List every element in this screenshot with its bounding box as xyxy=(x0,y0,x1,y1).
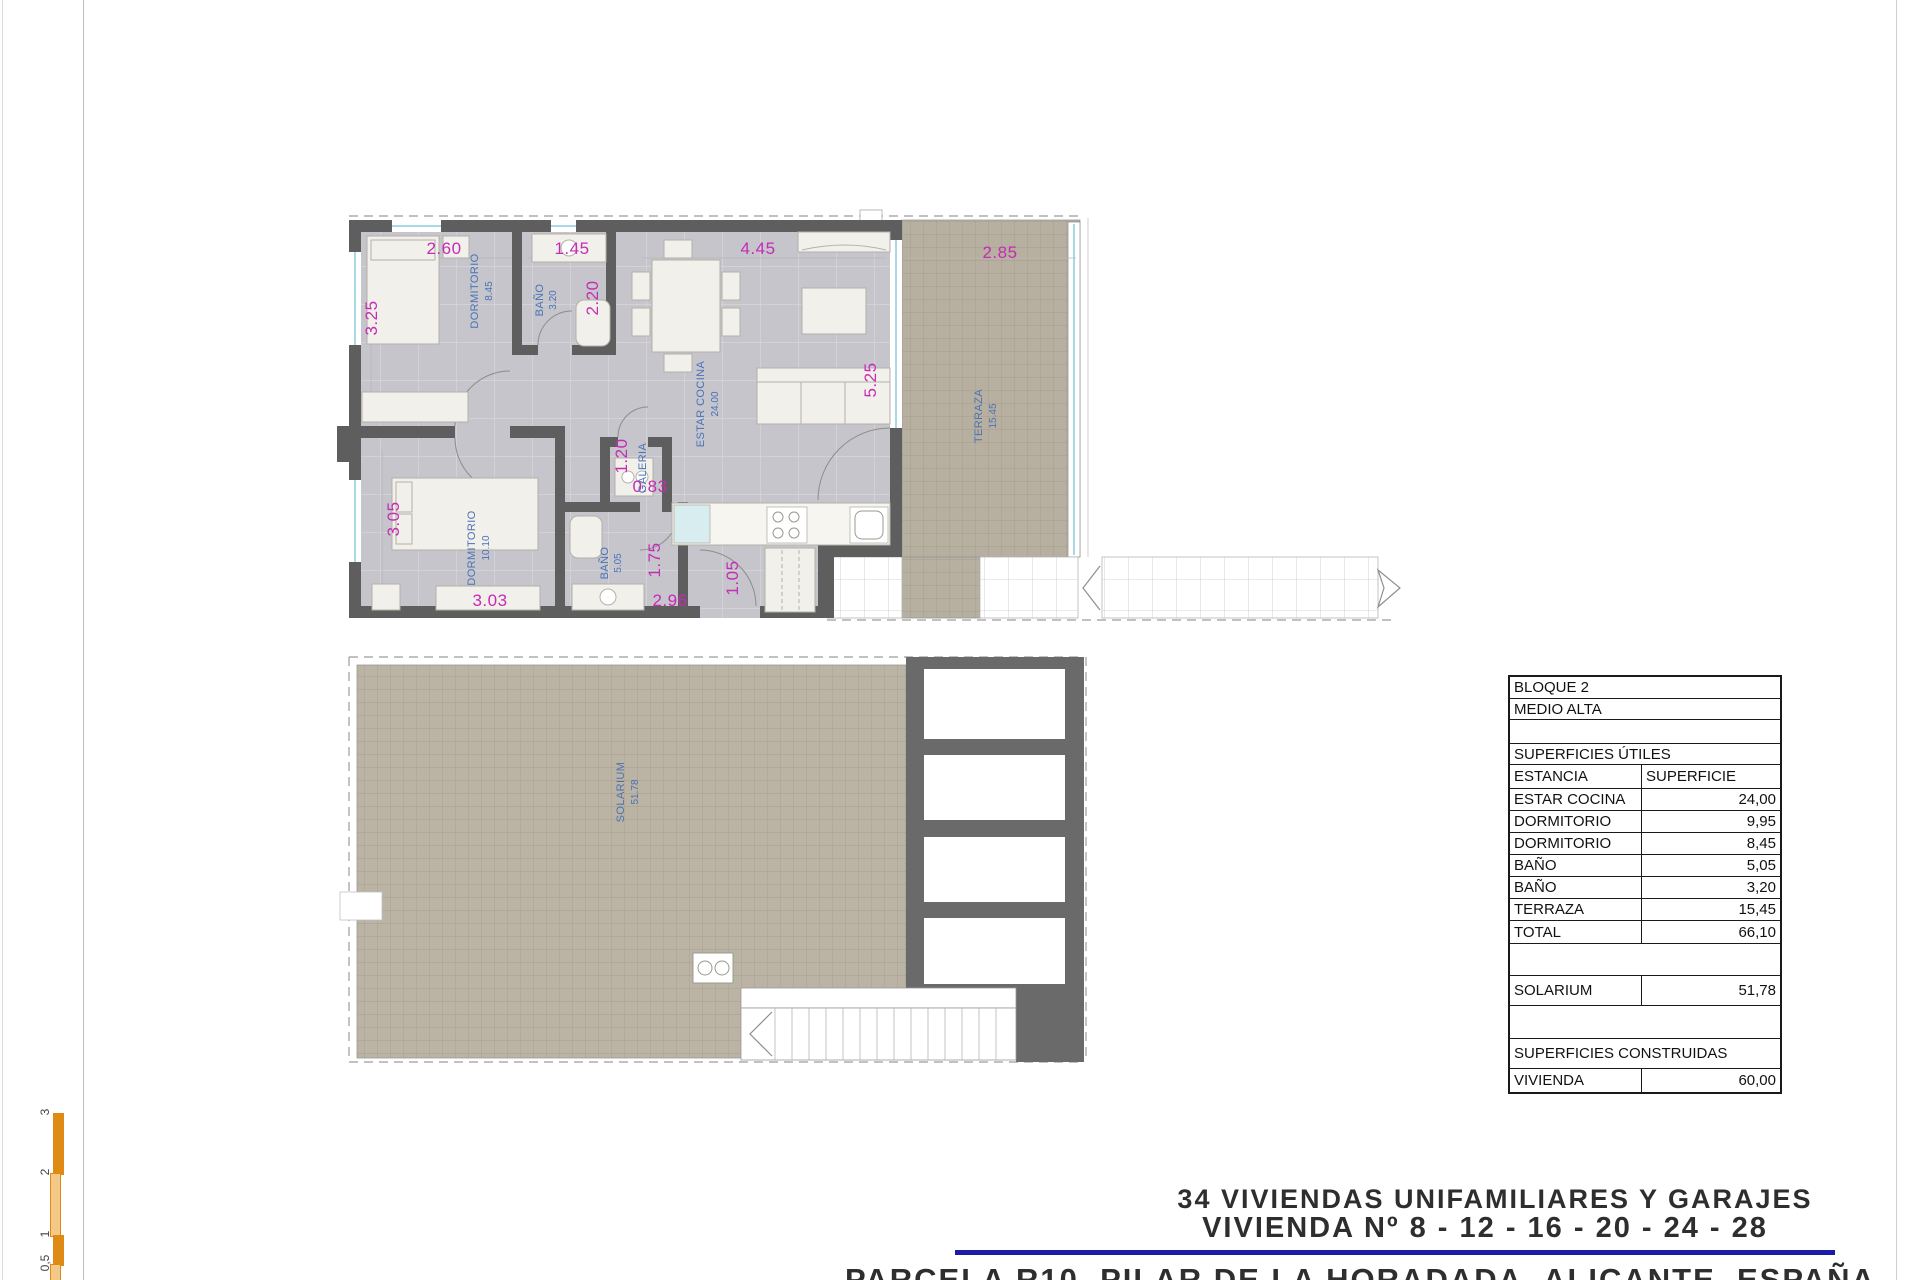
lower-floor-plan: SOLARIUM 51.78 xyxy=(340,657,1086,1062)
room-area-label: 51.78 xyxy=(630,779,641,804)
dim-label: 3.25 xyxy=(362,300,381,335)
col-header-room: ESTANCIA xyxy=(1510,765,1642,788)
stairs xyxy=(741,988,1016,1060)
table-row-level: MEDIO ALTA xyxy=(1510,699,1780,720)
row-area: 51,78 xyxy=(1642,976,1780,1005)
table-row: TERRAZA15,45 xyxy=(1510,899,1780,921)
scale-segment xyxy=(53,1235,64,1266)
useful-title: SUPERFICIES ÚTILES xyxy=(1510,744,1780,764)
row-area: 24,00 xyxy=(1642,789,1780,810)
dim-label: 3.05 xyxy=(384,501,403,536)
room-area-label: 10.10 xyxy=(481,535,492,560)
row-room: DORMITORIO xyxy=(1510,811,1642,832)
boundary-notch xyxy=(340,892,382,920)
scale-label: 2 xyxy=(38,1157,52,1187)
dim-label: 5.25 xyxy=(861,362,880,397)
row-room: SOLARIUM xyxy=(1510,976,1642,1005)
room-area-label: 15.45 xyxy=(988,403,999,428)
dwelling-numbers: VIVIENDA Nº 8 - 12 - 16 - 20 - 24 - 28 xyxy=(1130,1212,1840,1245)
dim-label: 4.45 xyxy=(740,239,775,258)
table-row-empty xyxy=(1510,720,1780,744)
room-label: BAÑO xyxy=(533,284,546,317)
row-room: VIVIENDA xyxy=(1510,1069,1642,1092)
tv-sideboard xyxy=(798,232,890,252)
table-row: DORMITORIO9,95 xyxy=(1510,811,1780,833)
dining-table xyxy=(652,260,720,352)
table-row: BAÑO5,05 xyxy=(1510,855,1780,877)
terraza-railing xyxy=(1068,222,1080,557)
table-row-empty xyxy=(1510,944,1780,976)
table-row-total: TOTAL66,10 xyxy=(1510,921,1780,944)
toilet xyxy=(570,516,602,558)
room-label: SOLARIUM xyxy=(615,762,627,823)
level-label: MEDIO ALTA xyxy=(1510,699,1780,719)
table-row-built-title: SUPERFICIES CONSTRUIDAS xyxy=(1510,1039,1780,1069)
row-area: 60,00 xyxy=(1642,1069,1780,1092)
closet xyxy=(765,548,815,612)
table-row-solarium: SOLARIUM51,78 xyxy=(1510,976,1780,1006)
table-row: DORMITORIO8,45 xyxy=(1510,833,1780,855)
dim-label: 1.75 xyxy=(645,542,664,577)
row-area: 8,45 xyxy=(1642,833,1780,854)
room-label: DORMITORIO xyxy=(466,510,478,585)
row-room: TERRAZA xyxy=(1510,899,1642,920)
row-room: DORMITORIO xyxy=(1510,833,1642,854)
bed xyxy=(392,478,538,550)
dim-label: 1.05 xyxy=(723,560,742,595)
room-label: BAÑO xyxy=(598,547,611,580)
table-row-empty xyxy=(1510,1006,1780,1039)
col-header-area: SUPERFICIE xyxy=(1642,765,1780,788)
room-label: TERRAZA xyxy=(973,389,985,443)
row-area: 15,45 xyxy=(1642,899,1780,920)
dim-label: 3.03 xyxy=(472,591,507,610)
sink xyxy=(850,507,888,543)
fridge xyxy=(674,505,710,543)
room-area-label: 8.45 xyxy=(484,281,495,301)
block-label: BLOQUE 2 xyxy=(1510,677,1780,698)
walkway-arrow xyxy=(1378,570,1400,607)
upper-floor-plan: 2.60 1.45 4.45 2.85 3.25 3.05 2.20 5.25 … xyxy=(337,210,1400,620)
location-title: PARCELA R10, PILAR DE LA HORADADA, ALICA… xyxy=(845,1262,1861,1280)
scale-bar: 3 2 1 0,5 xyxy=(46,1113,80,1280)
scale-segment xyxy=(53,1113,64,1175)
room-label: ESTAR COCINA xyxy=(695,360,707,447)
table-row-vivienda: VIVIENDA60,00 xyxy=(1510,1069,1780,1092)
row-area: 3,20 xyxy=(1642,877,1780,898)
row-area: 9,95 xyxy=(1642,811,1780,832)
walkway-chevron xyxy=(1083,566,1100,610)
room-label: DORMITORIO xyxy=(469,253,481,328)
dim-label: 1.20 xyxy=(612,438,631,473)
stove xyxy=(767,507,807,543)
areas-table: BLOQUE 2 MEDIO ALTA SUPERFICIES ÚTILES E… xyxy=(1508,675,1782,1094)
kitchen-counter xyxy=(672,503,890,545)
row-area: 5,05 xyxy=(1642,855,1780,876)
row-room: TOTAL xyxy=(1510,921,1642,943)
room-area-label: 3.20 xyxy=(548,290,559,310)
table-row: ESTAR COCINA24,00 xyxy=(1510,789,1780,811)
table-row-block: BLOQUE 2 xyxy=(1510,677,1780,699)
built-title: SUPERFICIES CONSTRUIDAS xyxy=(1510,1039,1780,1068)
dim-label: 2.96 xyxy=(652,591,687,610)
scale-label: 3 xyxy=(38,1097,52,1127)
scale-label: 0,5 xyxy=(38,1248,52,1278)
row-room: ESTAR COCINA xyxy=(1510,789,1642,810)
dim-label: 1.45 xyxy=(554,239,589,258)
row-area: 66,10 xyxy=(1642,921,1780,943)
project-title: 34 VIVIENDAS UNIFAMILIARES Y GARAJES xyxy=(1150,1184,1840,1215)
nightstand xyxy=(372,584,400,610)
dim-label: 2.85 xyxy=(982,243,1017,262)
side-table xyxy=(802,288,866,334)
room-area-label: 24.00 xyxy=(710,391,721,416)
room-label: GALERIA xyxy=(637,443,649,494)
row-room: BAÑO xyxy=(1510,855,1642,876)
dim-label: 2.20 xyxy=(583,280,602,315)
dim-label: 2.60 xyxy=(426,239,461,258)
table-row-useful-title: SUPERFICIES ÚTILES xyxy=(1510,744,1780,765)
room-area-label: 5.05 xyxy=(613,553,624,573)
table-row: BAÑO3,20 xyxy=(1510,877,1780,899)
skylight xyxy=(693,953,733,983)
scale-label: 1 xyxy=(38,1219,52,1249)
dresser xyxy=(362,392,468,422)
title-divider xyxy=(955,1250,1835,1255)
row-room: BAÑO xyxy=(1510,877,1642,898)
table-header-row: ESTANCIA SUPERFICIE xyxy=(1510,765,1780,789)
drawing-sheet: 2.60 1.45 4.45 2.85 3.25 3.05 2.20 5.25 … xyxy=(0,0,1920,1280)
